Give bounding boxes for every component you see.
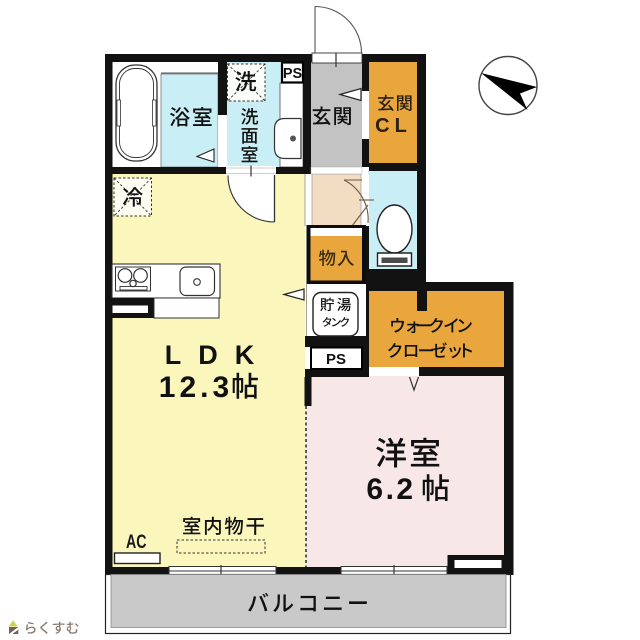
- svg-text:CL: CL: [375, 115, 412, 137]
- svg-text:AC: AC: [126, 532, 147, 553]
- svg-text:12.3: 12.3: [159, 371, 233, 404]
- svg-text:PS: PS: [326, 351, 346, 368]
- svg-text:PS: PS: [283, 66, 303, 82]
- svg-text:6.2: 6.2: [366, 473, 415, 506]
- svg-text:LDK: LDK: [165, 340, 272, 370]
